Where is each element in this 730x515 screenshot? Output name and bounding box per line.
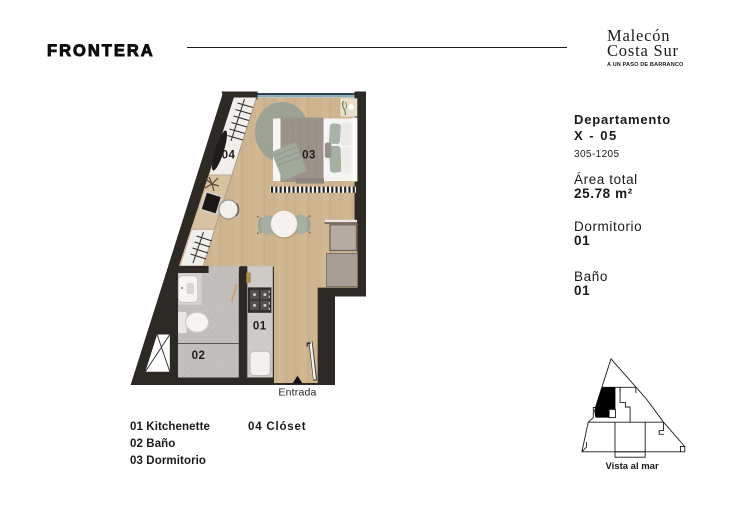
svg-text:03: 03: [302, 150, 316, 162]
svg-text:01: 01: [253, 321, 267, 333]
svg-text:02: 02: [192, 350, 206, 362]
svg-text:Entrada: Entrada: [278, 387, 316, 399]
svg-text:04: 04: [222, 150, 236, 162]
